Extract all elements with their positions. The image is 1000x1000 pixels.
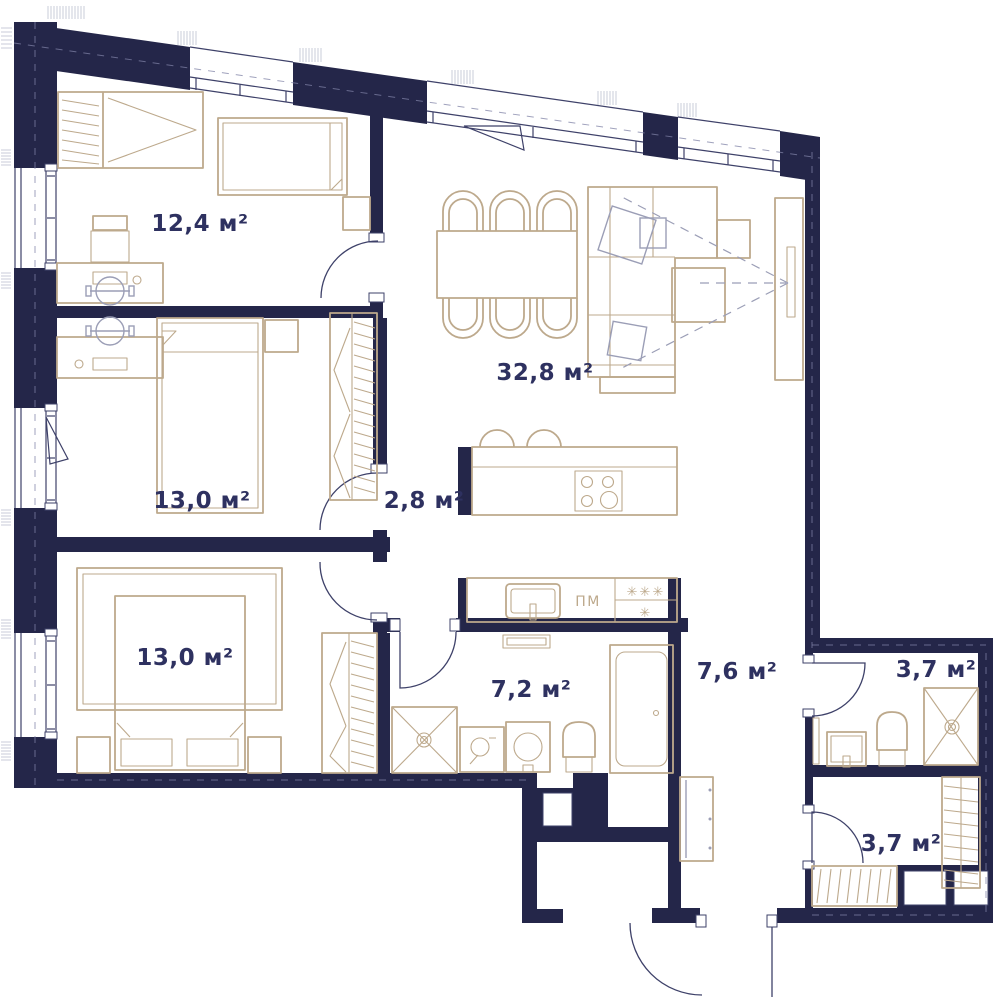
toilet-icon xyxy=(563,722,595,772)
tv-console-icon xyxy=(622,197,803,380)
shower-room-door-arc xyxy=(812,663,865,716)
dressing-room-door-arc xyxy=(812,812,863,863)
room-label-corridor: 2,8 м² xyxy=(384,488,465,514)
single-bed-icon xyxy=(218,118,347,195)
bathtub-icon xyxy=(610,645,673,773)
desk-icon xyxy=(57,337,163,378)
double-bed-icon xyxy=(157,318,263,513)
kitchen-sink-icon xyxy=(506,584,560,620)
bedroom-3-door-arc xyxy=(320,562,377,620)
room-label-bathroom: 7,2 м² xyxy=(491,677,572,703)
exterior-walls xyxy=(14,22,993,923)
nightstand-icon xyxy=(343,197,370,230)
living-kitchen-furniture xyxy=(437,187,803,648)
dining-table-icon xyxy=(437,191,577,338)
washing-machine-icon xyxy=(506,722,550,772)
room-label-hallway: 7,6 м² xyxy=(697,659,778,685)
nightstand-icon xyxy=(77,737,110,773)
room-label-living-kitchen: 32,8 м² xyxy=(496,360,593,386)
clothes-rack-icon xyxy=(812,866,897,906)
desk-icon xyxy=(57,216,163,303)
wardrobe-icon xyxy=(322,633,377,773)
toilet-icon xyxy=(877,712,907,766)
room-label-bedroom-1: 12,4 м² xyxy=(151,211,248,237)
fridge-label: ✳ xyxy=(640,606,653,621)
tv-icon xyxy=(787,247,795,317)
shower-icon xyxy=(924,688,978,765)
office-chair-icon xyxy=(86,317,134,345)
nightstand-icon xyxy=(248,737,281,773)
hob-icon xyxy=(575,471,622,511)
shower-room-fixtures xyxy=(813,688,978,767)
hand-sink-icon xyxy=(460,727,504,772)
fridge-freezer-label: ✳✳✳ xyxy=(627,585,666,600)
hallway-furniture xyxy=(680,777,713,861)
bedroom-1-furniture xyxy=(57,92,370,305)
room-label-shower-room: 3,7 м² xyxy=(896,657,977,683)
wardrobe-icon xyxy=(58,92,203,168)
dishwasher-label: ПМ xyxy=(575,594,601,610)
room-label-bedroom-2: 13,0 м² xyxy=(153,488,250,514)
entrance-door-arc xyxy=(630,923,702,995)
shower-icon xyxy=(392,707,457,773)
room-label-bedroom-3: 13,0 м² xyxy=(136,645,233,671)
bedroom-1-door-arc xyxy=(321,241,378,298)
bathroom-door-arc xyxy=(400,632,456,688)
bedroom-2-furniture xyxy=(57,313,377,513)
room-label-dressing-room: 3,7 м² xyxy=(861,831,942,857)
nightstand-icon xyxy=(265,320,298,352)
coffee-table-icon xyxy=(672,268,725,322)
towel-rail-icon xyxy=(813,718,819,764)
sink-icon xyxy=(827,732,866,767)
kitchen-island-icon xyxy=(472,430,677,515)
plan-svg: 12,4 м² 13,0 м² 13,0 м² 32,8 м² 2,8 м² 7… xyxy=(0,0,1000,1000)
wardrobe-icon xyxy=(330,313,377,500)
bathroom-fixtures xyxy=(392,645,673,773)
bedroom-2-door-arc xyxy=(320,473,377,530)
appliance-labels: ПМ ✳✳✳ ✳ xyxy=(575,585,665,621)
bar-stool-icon xyxy=(480,430,561,447)
floor-plan: 12,4 м² 13,0 м² 13,0 м² 32,8 м² 2,8 м² 7… xyxy=(0,0,1000,1000)
hall-cabinet-icon xyxy=(680,777,713,861)
